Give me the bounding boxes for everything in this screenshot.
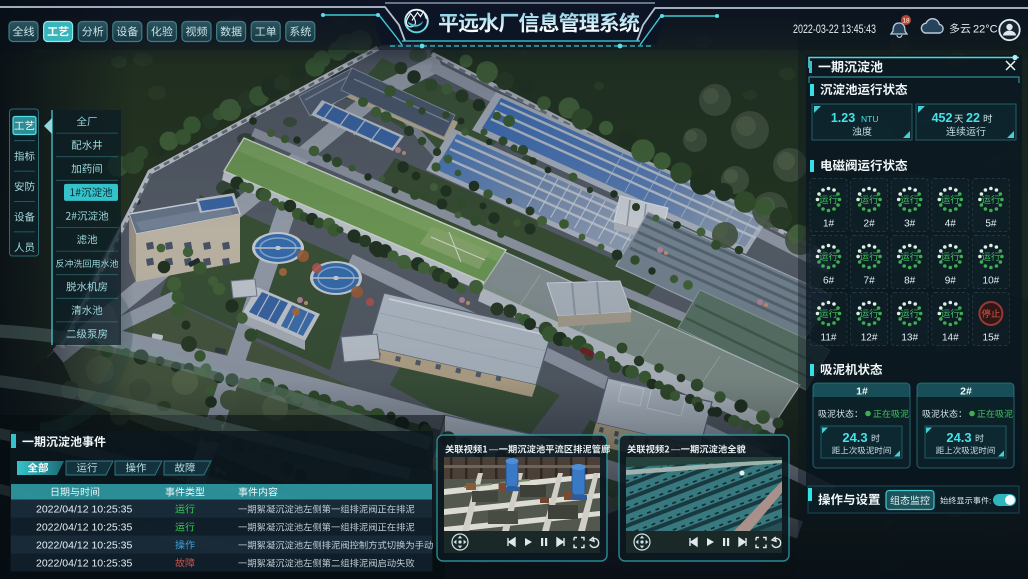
svg-text:2#: 2# [864, 219, 876, 230]
svg-text:2022/04/12 10:25:35: 2022/04/12 10:25:35 [36, 504, 133, 516]
svg-text:24.3: 24.3 [946, 430, 971, 445]
svg-text:1#: 1# [856, 386, 868, 398]
svg-text:452: 452 [932, 111, 953, 125]
svg-text:1#: 1# [823, 219, 835, 230]
svg-text:2022-03-22 13:45:43: 2022-03-22 13:45:43 [793, 24, 876, 36]
svg-text:22°C: 22°C [973, 24, 998, 36]
svg-text:3#: 3# [904, 219, 916, 230]
svg-text:2022/04/12 10:25:35: 2022/04/12 10:25:35 [36, 558, 133, 570]
svg-text:13#: 13# [901, 333, 918, 344]
svg-text:7#: 7# [864, 276, 876, 287]
svg-text::: : [989, 497, 991, 506]
svg-text:2022/04/12 10:25:35: 2022/04/12 10:25:35 [36, 522, 133, 534]
svg-text:22: 22 [966, 111, 980, 125]
svg-text:2022/04/12 10:25:35: 2022/04/12 10:25:35 [36, 540, 133, 552]
svg-text:NTU: NTU [861, 114, 878, 124]
svg-text:5#: 5# [985, 219, 997, 230]
svg-text:10#: 10# [983, 276, 1000, 287]
svg-text:8#: 8# [904, 276, 916, 287]
svg-text:4#: 4# [945, 219, 957, 230]
svg-text:1.23: 1.23 [831, 111, 855, 125]
svg-text:6#: 6# [823, 276, 835, 287]
svg-text:18: 18 [902, 18, 910, 25]
svg-text:14#: 14# [942, 333, 959, 344]
svg-text:15#: 15# [983, 333, 1000, 344]
svg-text:12#: 12# [861, 333, 878, 344]
svg-text:9#: 9# [945, 276, 957, 287]
svg-text:—: — [489, 444, 499, 454]
svg-text:24.3: 24.3 [842, 430, 867, 445]
svg-text:11#: 11# [821, 333, 837, 344]
svg-text:—: — [671, 444, 681, 454]
svg-text:2#: 2# [960, 386, 972, 398]
